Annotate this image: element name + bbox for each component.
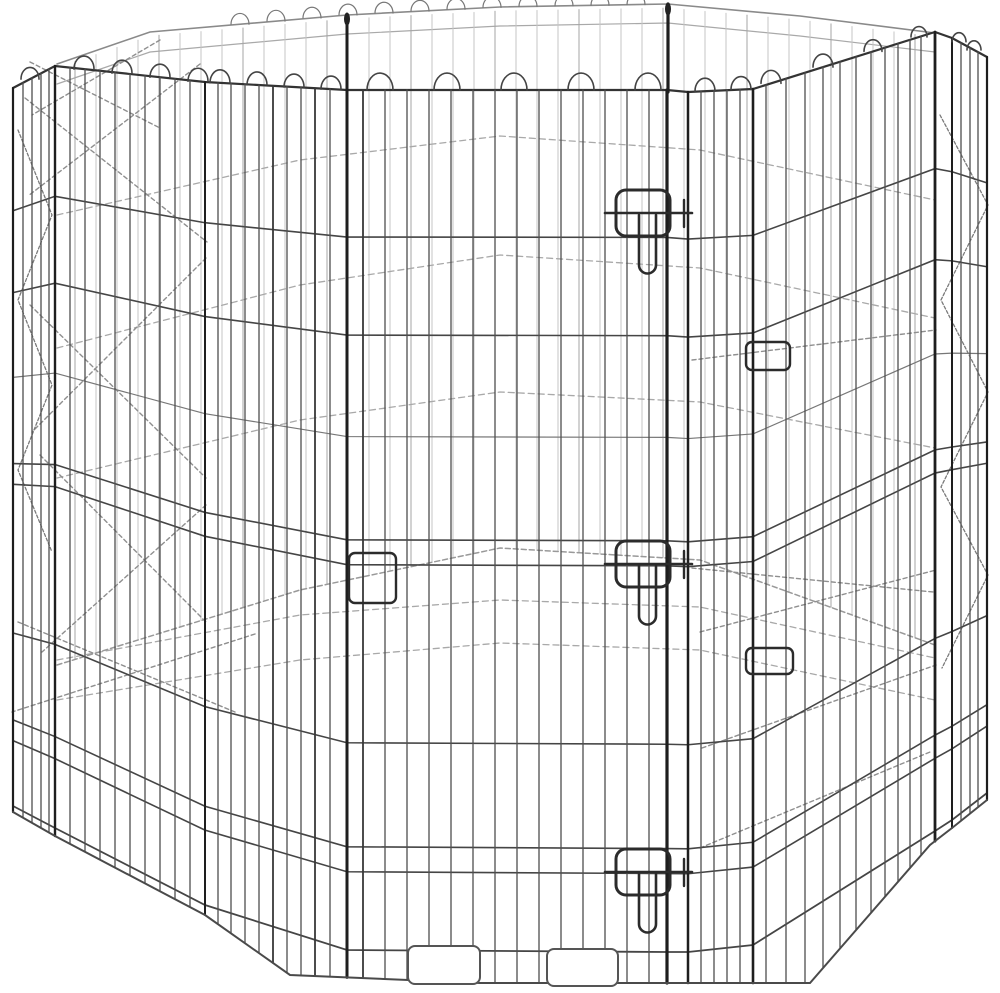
ground-edge <box>13 800 987 983</box>
fold-crease-lines <box>12 40 988 848</box>
back-structure <box>57 0 935 700</box>
pet-exercise-pen-illustration <box>0 0 1000 993</box>
foot-plate-left <box>408 946 480 984</box>
foot-plate-right <box>547 949 618 986</box>
product-photo: Octagonal foldable metal wire pet exerci… <box>0 0 1000 993</box>
foot-plates <box>408 946 618 986</box>
